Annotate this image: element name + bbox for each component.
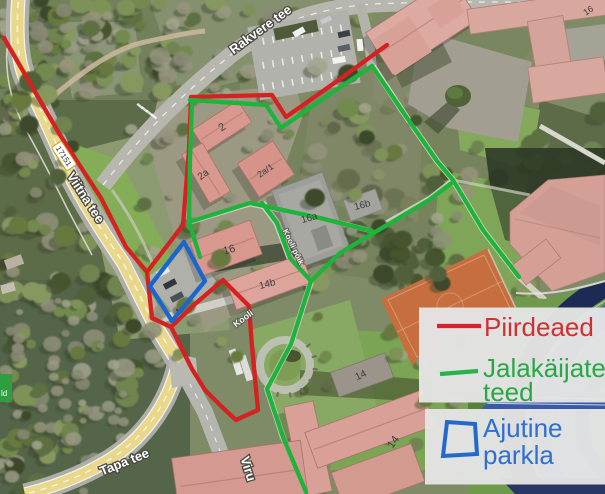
svg-text:Piirdeaed: Piirdeaed [484, 312, 594, 342]
svg-text:parkla: parkla [483, 440, 554, 470]
svg-text:ld: ld [1, 389, 7, 398]
svg-text:teed: teed [483, 377, 534, 407]
svg-text:Ajutine: Ajutine [483, 413, 563, 443]
